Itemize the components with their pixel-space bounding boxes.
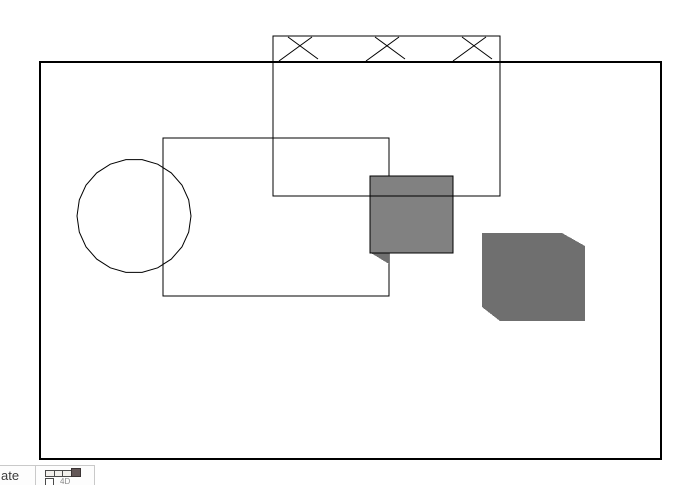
- taskbar-button-partial[interactable]: ate: [0, 466, 36, 485]
- gray-cube[interactable]: [482, 233, 585, 321]
- shadow-triangle[interactable]: [371, 253, 389, 264]
- table-icon-header-row: [45, 470, 72, 477]
- cross-braces[interactable]: [366, 37, 399, 61]
- cross-braces[interactable]: [279, 37, 312, 61]
- faceted-circle[interactable]: [77, 160, 191, 273]
- application-window: ate 4D: [0, 0, 686, 485]
- taskbar-table-button[interactable]: 4D: [36, 466, 95, 485]
- taskbar-fragment: ate 4D: [0, 465, 95, 485]
- tall-rectangle[interactable]: [273, 36, 500, 196]
- cross-braces[interactable]: [453, 37, 486, 61]
- table-datasheet-icon: 4D: [45, 468, 83, 485]
- table-icon-cell: [55, 471, 64, 476]
- table-icon-body-cell: [45, 478, 54, 485]
- table-icon-dark-block: [71, 468, 81, 477]
- taskbar-button-label: ate: [1, 468, 19, 483]
- drawing-canvas[interactable]: [0, 0, 686, 485]
- table-icon-cell: [63, 471, 71, 476]
- cross-braces[interactable]: [288, 37, 318, 59]
- cross-braces[interactable]: [462, 37, 492, 59]
- gray-square[interactable]: [370, 176, 453, 253]
- middle-rectangle[interactable]: [163, 138, 389, 296]
- table-icon-cell: [46, 471, 55, 476]
- cross-braces[interactable]: [375, 37, 405, 59]
- table-icon-text: 4D: [60, 478, 70, 485]
